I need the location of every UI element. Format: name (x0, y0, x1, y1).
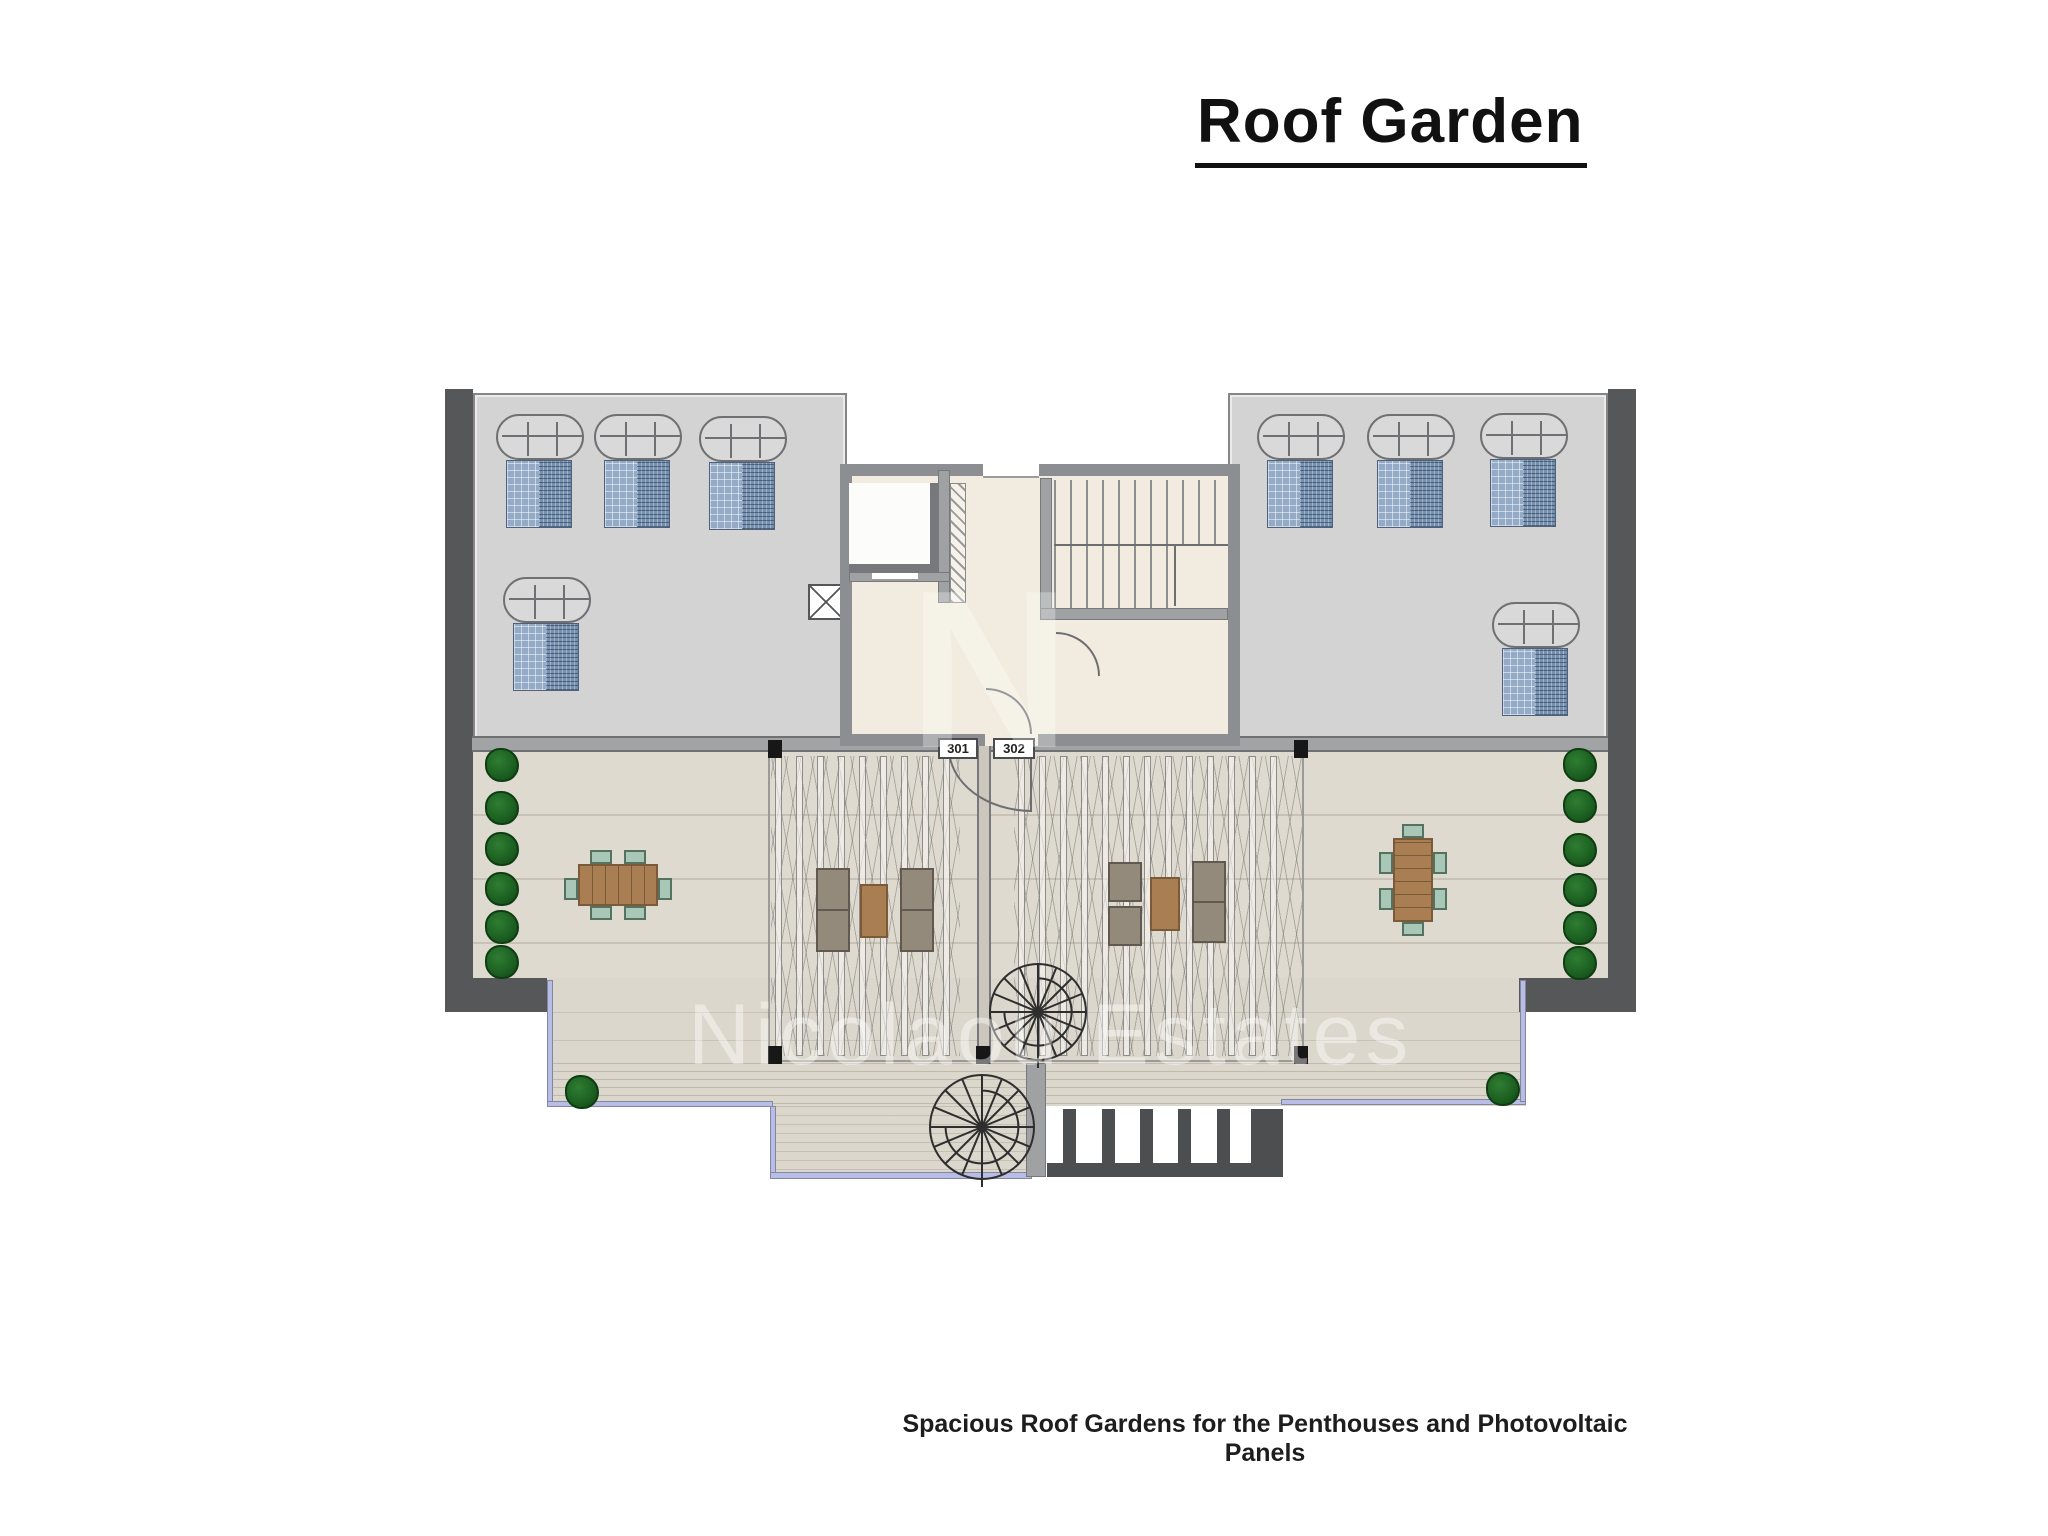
pv-cell-grid (539, 461, 571, 527)
pv-panel-unit (496, 414, 584, 534)
balustrade (1520, 980, 1526, 1102)
pergola-post (768, 740, 782, 758)
dining-chair (1402, 922, 1424, 936)
pv-panel (513, 623, 579, 691)
dining-table (1393, 838, 1433, 922)
pv-panel (1502, 648, 1568, 716)
balustrade (770, 1106, 776, 1178)
pv-cell-grid (546, 624, 578, 690)
outdoor-armchair (1108, 862, 1142, 902)
pv-panel (709, 462, 775, 530)
pv-cell-grid (507, 461, 539, 527)
plant-shrub (1486, 1072, 1520, 1106)
plant-shrub (485, 872, 519, 906)
plant-shrub (1563, 789, 1597, 823)
pv-panel-unit (1257, 414, 1345, 534)
dining-chair (624, 850, 646, 864)
pv-mount (1492, 602, 1580, 648)
dining-chair (624, 906, 646, 920)
balustrade (547, 980, 553, 1106)
dining-chair (1433, 852, 1447, 874)
floor-plan: 301302Nicolaou EstatesN (0, 0, 2048, 1536)
pv-mount (1257, 414, 1345, 460)
plant-shrub (485, 748, 519, 782)
outdoor-sofa (1192, 861, 1226, 943)
plant-shrub (1563, 946, 1597, 980)
dining-chair (1433, 888, 1447, 910)
pv-mount (496, 414, 584, 460)
pv-cell-grid (1378, 461, 1410, 527)
dining-chair (590, 906, 612, 920)
pv-mount (503, 577, 591, 623)
coffee-table (1150, 877, 1180, 931)
plant-shrub (485, 945, 519, 979)
plant-shrub (485, 832, 519, 866)
watermark-text: Nicolaou Estates (688, 986, 1398, 1096)
plant-shrub (565, 1075, 599, 1109)
stair-rung (1217, 1109, 1230, 1163)
pv-panel (1377, 460, 1443, 528)
outdoor-sofa (900, 868, 934, 952)
pv-cell-grid (1491, 460, 1523, 526)
pv-panel-unit (699, 416, 787, 536)
dining-chair (658, 878, 672, 900)
pv-mount (1480, 413, 1568, 459)
pv-panel-unit (503, 577, 591, 697)
pv-panel-unit (1367, 414, 1455, 534)
pv-panel (506, 460, 572, 528)
stair-stringer (1047, 1163, 1283, 1177)
plant-shrub (485, 791, 519, 825)
pv-panel-unit (1480, 413, 1568, 533)
plant-shrub (1563, 833, 1597, 867)
stair-rung (1102, 1109, 1115, 1163)
outdoor-armchair (1108, 906, 1142, 946)
dining-table (578, 864, 658, 906)
plant-shrub (1563, 873, 1597, 907)
pv-cell-grid (742, 463, 774, 529)
stair-rung (1140, 1109, 1153, 1163)
outer-wall-left-stub (445, 978, 547, 1012)
staircase-treads (1054, 480, 1228, 546)
plant-shrub (1563, 748, 1597, 782)
dining-chair (1379, 888, 1393, 910)
pv-cell-grid (1410, 461, 1442, 527)
pv-panel-unit (1492, 602, 1580, 722)
pv-cell-grid (514, 624, 546, 690)
pv-cell-grid (710, 463, 742, 529)
pergola-post (1294, 740, 1308, 758)
outdoor-sofa (816, 868, 850, 952)
pv-cell-grid (1503, 649, 1535, 715)
coffee-table (860, 884, 888, 938)
outer-wall-left (445, 389, 473, 1012)
pv-cell-grid (605, 461, 637, 527)
roof-vent-shaft (808, 584, 844, 620)
pv-cell-grid (1268, 461, 1300, 527)
caption: Spacious Roof Gardens for the Penthouses… (880, 1410, 1650, 1468)
dining-chair (590, 850, 612, 864)
plant-shrub (1563, 911, 1597, 945)
pv-mount (594, 414, 682, 460)
pv-cell-grid (637, 461, 669, 527)
stair-rail (1174, 546, 1176, 606)
plant-shrub (485, 910, 519, 944)
dining-chair (1379, 852, 1393, 874)
pv-mount (1367, 414, 1455, 460)
window-gap (983, 464, 1039, 478)
pv-panel-unit (594, 414, 682, 534)
dining-chair (1402, 824, 1424, 838)
stair-rung (1178, 1109, 1191, 1163)
pv-panel (604, 460, 670, 528)
pv-cell-grid (1300, 461, 1332, 527)
pv-panel (1490, 459, 1556, 527)
dining-chair (564, 878, 578, 900)
pv-cell-grid (1523, 460, 1555, 526)
pv-mount (699, 416, 787, 462)
outer-wall-right (1608, 389, 1636, 1012)
outer-wall-right-stub (1519, 978, 1636, 1012)
pv-panel (1267, 460, 1333, 528)
external-stair (1047, 1107, 1283, 1179)
watermark-logo: N (908, 540, 1168, 770)
stair-rung (1063, 1109, 1076, 1163)
pv-cell-grid (1535, 649, 1567, 715)
